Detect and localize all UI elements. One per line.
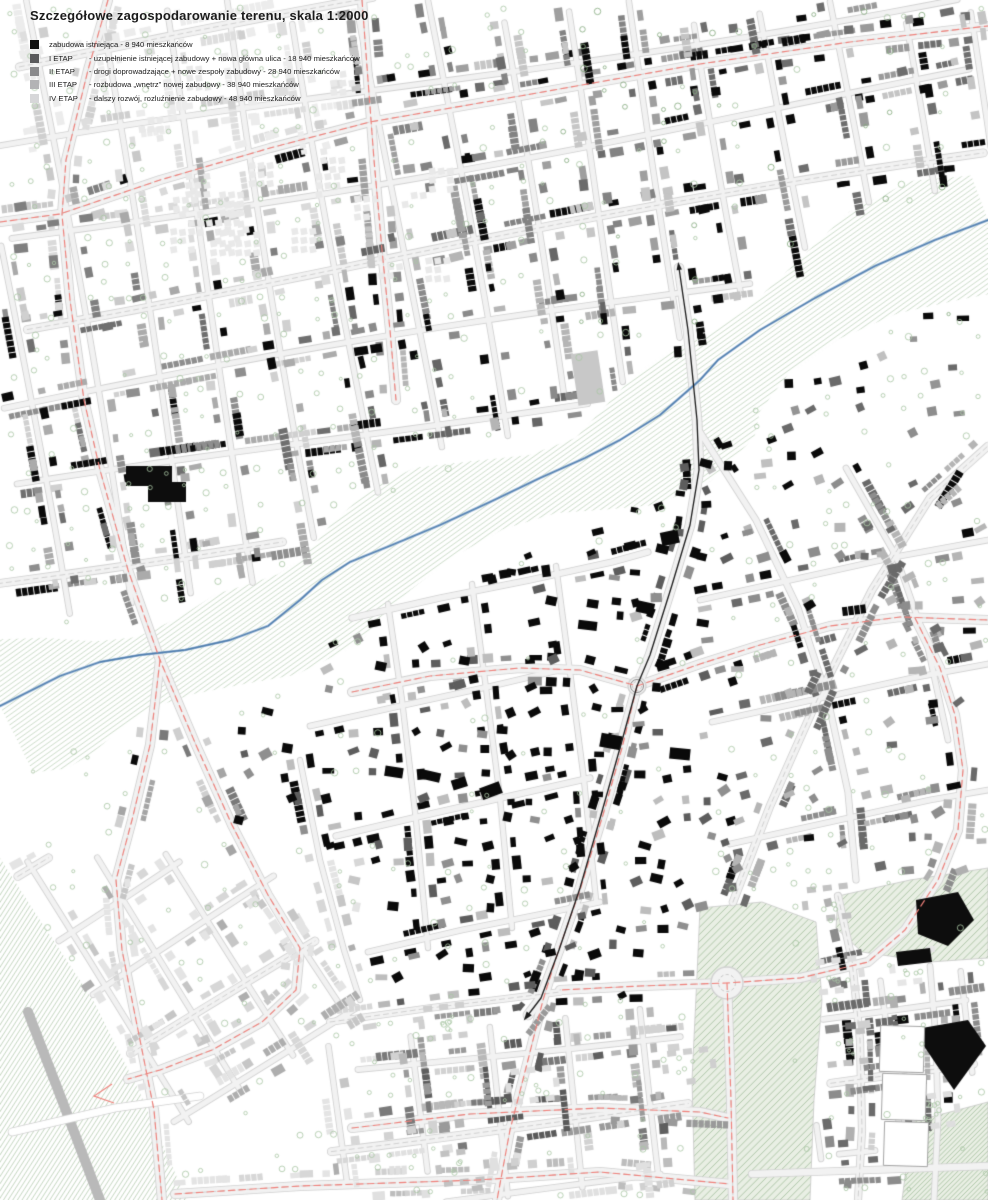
legend-row-etap1: I ETAP - uzupełnienie istniejącej zabudo… (30, 51, 369, 64)
legend-label: I ETAP (49, 54, 89, 63)
legend-label: IV ETAP (49, 94, 89, 103)
legend-desc: - dalszy rozwój, rozluźnienie zabudowy -… (89, 94, 301, 103)
legend-desc: - drogi doprowadzające + nowe zespoły za… (89, 67, 340, 76)
map-title: Szczegółowe zagospodarowanie terenu, ska… (30, 8, 369, 23)
legend-row-etap4: IV ETAP - dalszy rozwój, rozluźnienie za… (30, 92, 369, 105)
plan-map-stage: Szczegółowe zagospodarowanie terenu, ska… (0, 0, 988, 1200)
legend-desc: - uzupełnienie istniejącej zabudowy + no… (89, 54, 360, 63)
legend-row-etap3: III ETAP - rozbudowa „wnętrz” nowej zabu… (30, 78, 369, 91)
legend-swatch-etap3 (30, 80, 39, 89)
map-legend: Szczegółowe zagospodarowanie terenu, ska… (30, 8, 369, 105)
legend-swatch-existing (30, 40, 39, 49)
legend-desc: - rozbudowa „wnętrz” nowej zabudowy - 38… (89, 80, 299, 89)
legend-row-existing: zabudowa istniejąca - 8 940 mieszkańców (30, 38, 369, 51)
legend-swatch-etap2 (30, 67, 39, 76)
legend-label: zabudowa istniejąca - 8 940 mieszkańców (49, 40, 89, 49)
legend-label: III ETAP (49, 80, 89, 89)
legend-swatch-etap4 (30, 94, 39, 103)
legend-row-etap2: II ETAP - drogi doprowadzające + nowe ze… (30, 65, 369, 78)
city-plan-canvas (0, 0, 988, 1200)
legend-label: II ETAP (49, 67, 89, 76)
legend-swatch-etap1 (30, 54, 39, 63)
